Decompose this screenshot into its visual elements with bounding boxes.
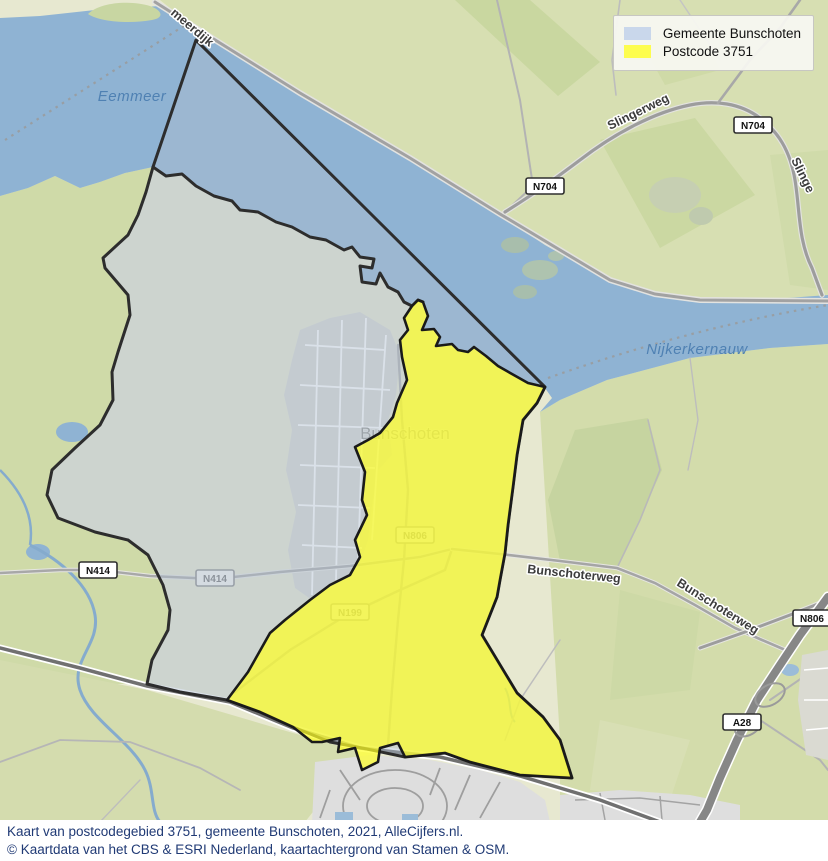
legend: Gemeente Bunschoten Postcode 3751 (613, 15, 814, 71)
legend-item-gemeente: Gemeente Bunschoten (624, 26, 801, 41)
map-svg: N414 N199 N806 Bunschoten Eemmeer Nijker… (0, 0, 828, 822)
svg-text:N704: N704 (533, 182, 557, 193)
svg-text:N806: N806 (800, 614, 824, 625)
legend-label-postcode: Postcode 3751 (663, 44, 753, 59)
map-canvas: N414 N199 N806 Bunschoten Eemmeer Nijker… (0, 0, 828, 822)
map-screenshot: N414 N199 N806 Bunschoten Eemmeer Nijker… (0, 0, 828, 861)
badge-n704-west: N704 (526, 178, 564, 194)
legend-item-postcode: Postcode 3751 (624, 44, 801, 59)
water-label-nijkerkernauw: Nijkerkernauw (646, 341, 748, 358)
caption-line-1: Kaart van postcodegebied 3751, gemeente … (7, 823, 828, 841)
badge-n704-east: N704 (734, 117, 772, 133)
svg-text:N414: N414 (86, 566, 110, 577)
svg-text:N704: N704 (741, 121, 765, 132)
map-caption: Kaart van postcodegebied 3751, gemeente … (0, 820, 828, 861)
badge-n414-west: N414 (79, 562, 117, 578)
svg-text:A28: A28 (733, 718, 752, 729)
water-label-eemmeer: Eemmeer (98, 88, 167, 105)
legend-swatch-postcode (624, 45, 651, 58)
legend-label-gemeente: Gemeente Bunschoten (663, 26, 801, 41)
badge-n806-east: N806 (793, 610, 828, 626)
legend-swatch-gemeente (624, 27, 651, 40)
badge-a28: A28 (723, 714, 761, 730)
caption-line-2: © Kaartdata van het CBS & ESRI Nederland… (7, 841, 828, 859)
